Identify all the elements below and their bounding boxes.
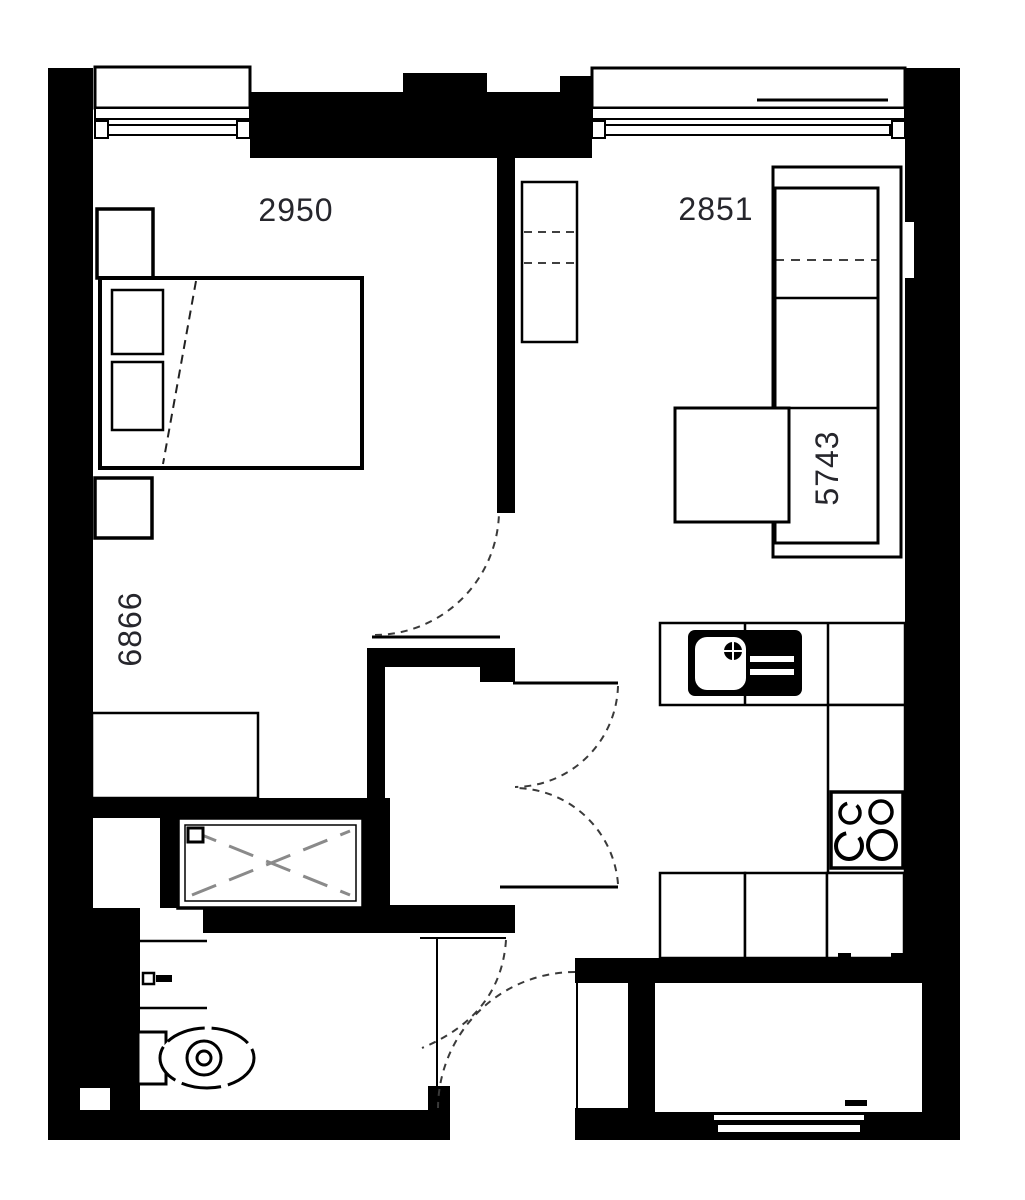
fixture-bracket	[143, 973, 154, 984]
window-end-cap	[237, 121, 250, 138]
wall-bottom-middle	[575, 1108, 628, 1140]
burner	[836, 833, 862, 859]
dimension-bedroom-length: 6866	[112, 591, 148, 666]
shower	[178, 818, 363, 908]
dimension-living-width: 2851	[678, 191, 753, 227]
kitchen-sink	[688, 630, 802, 696]
window-frame-bar	[605, 125, 890, 135]
sofa-chaise	[675, 408, 789, 522]
cabinet-foot	[838, 953, 851, 960]
wall-hall-west	[367, 648, 385, 813]
wall-right-lower	[922, 958, 960, 1140]
drainer-groove	[750, 669, 794, 675]
dimension-bedroom-width: 2950	[258, 192, 333, 228]
window-end-cap	[892, 121, 905, 138]
balcony-threshold-mark	[845, 1100, 867, 1106]
wardrobe	[522, 182, 577, 342]
wall-top-segment	[560, 76, 592, 158]
burner	[868, 831, 896, 859]
wall-bedroom-east	[497, 140, 515, 513]
wall-notch-right	[905, 222, 914, 278]
window-end-cap	[95, 121, 108, 138]
window-end-cap	[592, 121, 605, 138]
base-cabinet	[827, 873, 904, 958]
wall-hall-north-stub	[480, 648, 515, 682]
wall-top-middle	[250, 92, 592, 158]
drainer-groove	[750, 656, 794, 662]
toilet-drain	[197, 1051, 211, 1065]
wall-bathroom-north	[93, 798, 390, 818]
floor-plan: 2950 2851 5743 6866	[0, 0, 1025, 1200]
dresser	[92, 713, 258, 798]
wall-bathroom-east	[363, 798, 390, 908]
fixture-bar	[156, 975, 172, 982]
window-sill	[95, 108, 250, 119]
wall-right-upper	[905, 68, 960, 958]
wall-bathroom-pipe-chase	[93, 908, 140, 1110]
wall-top-pillar	[403, 73, 487, 93]
floor-plan-canvas: 2950 2851 5743 6866	[0, 0, 1025, 1200]
wall-left	[48, 68, 93, 1140]
bedroom-window	[95, 67, 250, 138]
dimension-living-length: 5743	[809, 430, 845, 505]
window-sill	[713, 1114, 865, 1121]
base-cabinet	[660, 873, 745, 958]
burner	[870, 801, 892, 823]
window-pane	[592, 68, 905, 108]
pillow	[112, 362, 163, 430]
toilet	[138, 1028, 254, 1088]
cabinet-foot	[891, 953, 904, 960]
window-sill	[592, 108, 905, 119]
balcony	[655, 983, 922, 1112]
burner	[840, 803, 860, 823]
living-room-window	[592, 68, 905, 138]
wall-balcony-left-pier	[628, 983, 655, 1112]
wall-notch-bottom-left	[80, 1088, 110, 1110]
window-pane	[95, 67, 250, 108]
window-frame-bar	[108, 125, 237, 135]
wall-kitchen-south	[575, 958, 960, 983]
nightstand	[97, 209, 153, 278]
nightstand	[95, 478, 152, 538]
wall-bottom-left	[48, 1110, 450, 1140]
wall-shower-divider	[160, 818, 178, 908]
shower-drain	[188, 828, 203, 842]
balcony-window	[713, 1114, 865, 1133]
window-frame-bar	[717, 1124, 861, 1133]
base-cabinet	[745, 873, 827, 958]
stove	[831, 792, 903, 868]
pillow	[112, 290, 163, 354]
